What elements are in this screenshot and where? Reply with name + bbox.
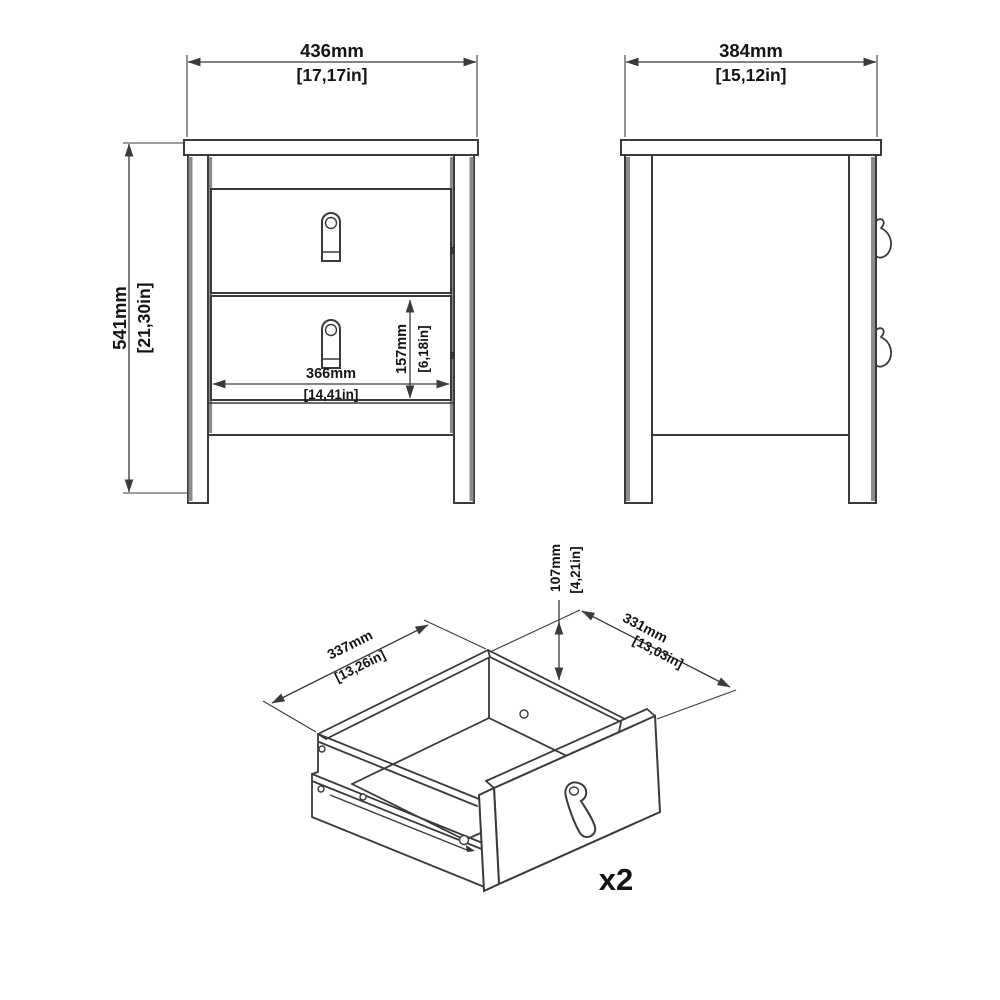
technical-drawing: 436mm [17,17in] 541mm [21,30in] 366mm [1… — [0, 0, 1000, 1000]
front-tabletop — [184, 140, 478, 155]
runner-catch — [460, 836, 469, 845]
side-handle-profile-top — [876, 219, 891, 257]
dim-drawer-front-height-in: [6,18in] — [416, 325, 431, 372]
dim-front-width: 436mm [17,17in] — [187, 40, 477, 137]
dim-drawer-height-in: [4,21in] — [568, 546, 583, 593]
dim-front-height: 541mm [21,30in] — [109, 143, 187, 493]
front-handle-bottom — [322, 320, 340, 368]
drawer-box — [312, 650, 660, 891]
quantity-label: x2 — [599, 862, 633, 897]
handle-hole — [570, 787, 579, 795]
drawer-stop-mark — [450, 247, 455, 254]
dim-front-width-in: [17,17in] — [297, 65, 368, 85]
dim-drawer-depth: 331mm [13,03in] — [490, 609, 736, 719]
handle-hole — [326, 325, 337, 336]
front-handle-top — [322, 213, 340, 261]
front-table-structure — [184, 140, 478, 503]
dim-drawer-height: 107mm [4,21in] — [547, 544, 583, 680]
dim-drawer-front-height-mm: 157mm — [394, 324, 410, 374]
screw-hole — [318, 786, 324, 792]
dim-front-height-mm: 541mm — [109, 286, 130, 350]
screw-hole — [319, 746, 325, 752]
side-panel — [652, 155, 849, 435]
dim-side-depth: 384mm [15,12in] — [625, 40, 877, 137]
side-table-structure — [621, 140, 891, 503]
dim-side-depth-in: [15,12in] — [716, 65, 787, 85]
drawer-iso-view: 337mm [13,26in] 331mm [13,03in] 107mm [4… — [263, 544, 736, 897]
dim-drawer-front-width-mm: 366mm — [306, 366, 356, 382]
front-view: 436mm [17,17in] 541mm [21,30in] 366mm [1… — [109, 40, 478, 503]
screw-hole — [520, 710, 528, 718]
side-handle-profile-bottom — [876, 328, 891, 366]
dim-side-depth-mm: 384mm — [719, 40, 783, 61]
drawing-sheet: 436mm [17,17in] 541mm [21,30in] 366mm [1… — [0, 0, 1000, 1000]
dim-drawer-front-width-in: [14,41in] — [304, 387, 359, 402]
side-view: 384mm [15,12in] — [621, 40, 891, 503]
drawer-stop-mark — [450, 352, 455, 359]
screw-hole — [360, 794, 366, 800]
dim-drawer-height-mm: 107mm — [547, 544, 563, 592]
handle-hole — [326, 218, 337, 229]
dim-front-width-mm: 436mm — [300, 40, 364, 61]
side-tabletop — [621, 140, 881, 155]
dim-front-height-in: [21,30in] — [134, 283, 154, 354]
